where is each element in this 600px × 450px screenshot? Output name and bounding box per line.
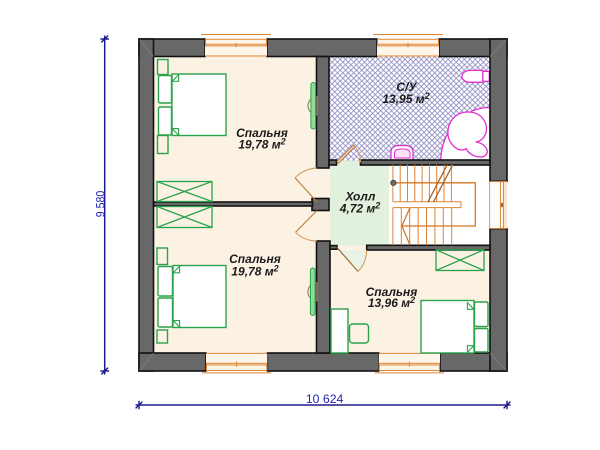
- svg-text:4,72 м2: 4,72 м2: [339, 201, 381, 216]
- svg-text:9 580: 9 580: [93, 190, 107, 217]
- svg-text:13,96 м2: 13,96 м2: [368, 295, 415, 310]
- svg-text:19,78 м2: 19,78 м2: [238, 136, 285, 151]
- svg-text:13,95 м2: 13,95 м2: [382, 91, 429, 106]
- svg-text:19,78 м2: 19,78 м2: [231, 264, 278, 279]
- svg-text:10 624: 10 624: [306, 392, 344, 406]
